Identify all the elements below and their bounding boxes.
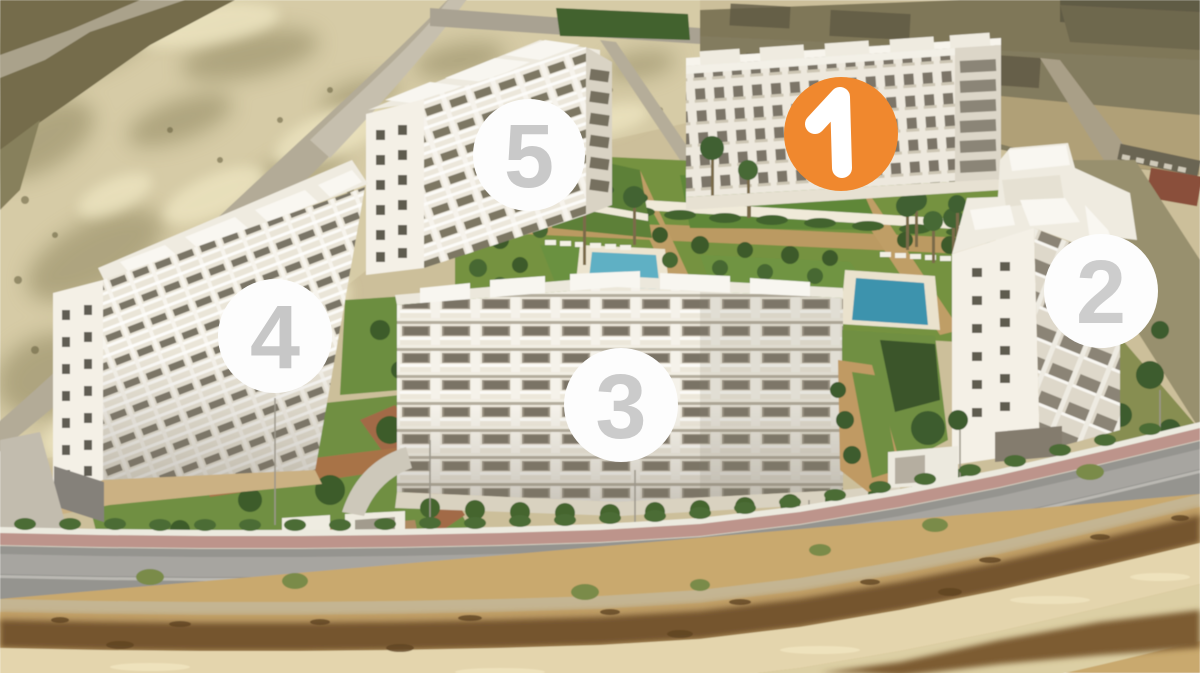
- svg-text:2: 2: [1076, 243, 1126, 343]
- svg-text:5: 5: [504, 107, 554, 207]
- svg-text:3: 3: [595, 356, 646, 458]
- svg-text:4: 4: [250, 288, 300, 388]
